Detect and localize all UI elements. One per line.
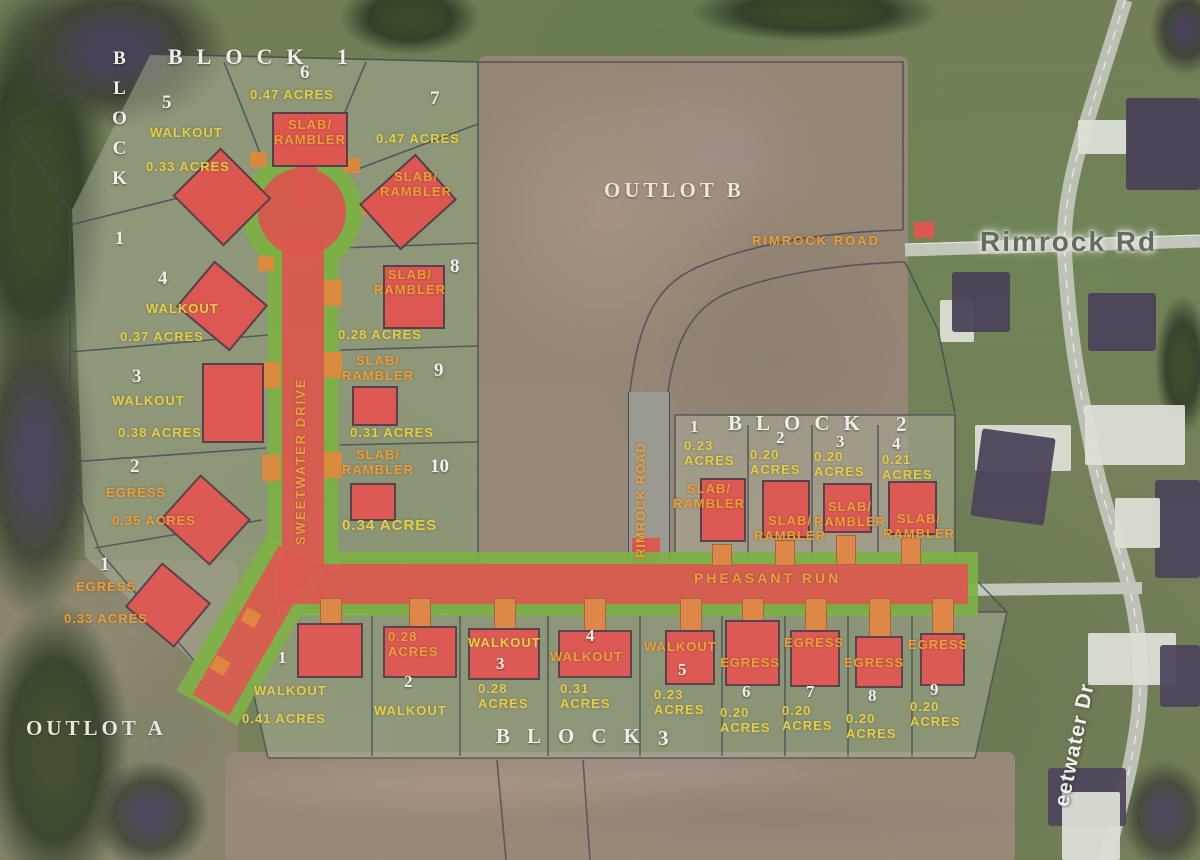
- block1-lot1-type: EGRESS: [76, 580, 136, 595]
- house-footprint: [202, 363, 264, 443]
- block3-lot8-acres: 0.20 ACRES: [846, 712, 897, 741]
- block3-lot1-number: 1: [278, 648, 287, 668]
- block3-lot5-acres: 0.23 ACRES: [654, 688, 705, 717]
- house-footprint: [350, 483, 396, 521]
- driveway-stub: [901, 537, 921, 565]
- block3-lot2-number: 2: [404, 672, 413, 692]
- block1-lot10-type: SLAB/ RAMBLER: [332, 448, 424, 477]
- block1-lot10-acres: 0.34 ACRES: [342, 518, 437, 535]
- block1-lot5-acres: 0.33 ACRES: [146, 160, 230, 175]
- house-footprint: [725, 620, 780, 686]
- block3-lot4-type: WALKOUT: [550, 650, 623, 665]
- block3-title: BLOCK: [496, 724, 657, 749]
- block1-lot4-number: 4: [158, 268, 168, 290]
- block1-title: BLOCK 1: [168, 44, 362, 70]
- driveway: [250, 152, 266, 167]
- house-footprint: [297, 623, 363, 678]
- block1-lot6-acres: 0.47 ACRES: [250, 88, 334, 103]
- outlot-a-label: OUTLOT A: [26, 716, 167, 741]
- block1-lot3-type: WALKOUT: [112, 394, 185, 409]
- rimrock-road-plat-label: RIMROCK ROAD: [634, 418, 649, 558]
- block3-lot1-type: WALKOUT: [254, 684, 327, 699]
- driveway-stub: [805, 598, 827, 632]
- block3-lot7-type: EGRESS: [784, 636, 844, 651]
- block3-lot3-type: WALKOUT: [468, 636, 541, 651]
- block1-lot8-acres: 0.28 ACRES: [338, 328, 422, 343]
- block1-lot8-type: SLAB/ RAMBLER: [366, 268, 454, 297]
- block1-lot2-number: 2: [130, 456, 140, 478]
- driveway-stub: [836, 535, 856, 565]
- rimrock-road-future-label: RIMROCK ROAD: [752, 234, 880, 249]
- pheasant-run-road: [278, 564, 968, 604]
- pheasant-run-label: PHEASANT RUN: [694, 571, 841, 587]
- block3-lot7-number: 7: [806, 682, 815, 702]
- block3-lot6-type: EGRESS: [720, 656, 780, 671]
- block1-lot6-type: SLAB/ RAMBLER: [272, 118, 348, 147]
- driveway-stub: [775, 540, 795, 566]
- driveway-stub: [494, 598, 516, 630]
- block3-lot5-type: WALKOUT: [644, 640, 717, 655]
- block1-lot7-number: 7: [430, 88, 440, 110]
- block1-lot5-number: 5: [162, 92, 172, 114]
- block2-lot3-acres: 0.20 ACRES: [814, 450, 865, 479]
- block3-lot3-acres: 0.28 ACRES: [478, 682, 529, 711]
- block3-lot8-number: 8: [868, 686, 877, 706]
- block2-lot1-type: SLAB/ RAMBLER: [668, 482, 750, 511]
- block1-lot3-number: 3: [132, 366, 142, 388]
- block2-lot4-acres: 0.21 ACRES: [882, 453, 933, 482]
- driveway-stub: [869, 598, 891, 638]
- block2-lot2-number: 2: [776, 428, 785, 448]
- block3-lot1-acres: 0.41 ACRES: [242, 712, 326, 727]
- block1-lot7-acres: 0.47 ACRES: [376, 132, 460, 147]
- block3-lot3-number: 3: [496, 654, 505, 674]
- block1-lot1-number: 1: [100, 554, 110, 576]
- block3-lot9-acres: 0.20 ACRES: [910, 700, 961, 729]
- driveway-stub: [932, 598, 954, 635]
- driveway-stub: [742, 598, 764, 622]
- block3-title-number: 3: [658, 726, 669, 751]
- block2-lot4-number: 4: [892, 434, 901, 454]
- driveway-stub: [409, 598, 431, 628]
- block3-lot9-number: 9: [930, 680, 939, 700]
- block3-lot8-type: EGRESS: [844, 656, 904, 671]
- driveway: [262, 362, 280, 388]
- block1-lot9-type: SLAB/ RAMBLER: [332, 354, 424, 383]
- block1-lot4-type: WALKOUT: [146, 302, 219, 317]
- driveway-stub: [712, 544, 732, 566]
- block2-lot2-acres: 0.20 ACRES: [750, 448, 801, 477]
- block3-lot7-acres: 0.20 ACRES: [782, 704, 833, 733]
- block3-lot2-acres: 0.28 ACRES: [388, 630, 439, 659]
- block3-lot5-number: 5: [678, 660, 687, 680]
- block1-lot4-acres: 0.37 ACRES: [120, 330, 204, 345]
- rimrock-rd-existing-label: Rimrock Rd: [980, 226, 1157, 258]
- driveway: [262, 455, 280, 481]
- block1-lot7-type: SLAB/ RAMBLER: [372, 170, 460, 199]
- block1-lot2-type: EGRESS: [106, 486, 166, 501]
- driveway-stub: [295, 165, 317, 207]
- house-footprint: [352, 386, 398, 426]
- block2-lot1-acres: 0.23 ACRES: [684, 439, 735, 468]
- driveway-stub: [320, 598, 342, 626]
- block3-lot4-number: 4: [586, 626, 595, 646]
- block2-lot4-type: SLAB/ RAMBLER: [878, 512, 960, 541]
- block2-title: BLOCK: [728, 411, 874, 436]
- block1-lot3-acres: 0.38 ACRES: [118, 426, 202, 441]
- block3-lot6-number: 6: [742, 682, 751, 702]
- block1-lot9-number: 9: [434, 360, 444, 382]
- block3-lot6-acres: 0.20 ACRES: [720, 706, 771, 735]
- block1-lot1-acres: 0.33 ACRES: [64, 612, 148, 627]
- block1-side-title: BLOCK 1: [108, 48, 130, 348]
- block3-lot9-type: EGRESS: [908, 638, 968, 653]
- block1-lot6-number: 6: [300, 62, 310, 84]
- block1-lot10-number: 10: [430, 456, 449, 478]
- block1-lot2-acres: 0.35 ACRES: [112, 514, 196, 529]
- driveway: [324, 280, 342, 306]
- block3-lot2-type: WALKOUT: [374, 704, 447, 719]
- plat-map: BLOCK 1 BLOCK 1 5 WALKOUT 0.33 ACRES 6 0…: [0, 0, 1200, 860]
- outlot-b-label: OUTLOT B: [604, 178, 745, 203]
- driveway: [258, 256, 274, 271]
- sweetwater-drive-label: SWEETWATER DRIVE: [294, 295, 309, 545]
- driveway-stub: [680, 598, 702, 632]
- block2-lot1-number: 1: [690, 417, 699, 437]
- block1-lot5-type: WALKOUT: [150, 126, 223, 141]
- block3-lot4-acres: 0.31 ACRES: [560, 682, 611, 711]
- rimrock-road-connector: [914, 222, 934, 238]
- block1-lot9-acres: 0.31 ACRES: [350, 426, 434, 441]
